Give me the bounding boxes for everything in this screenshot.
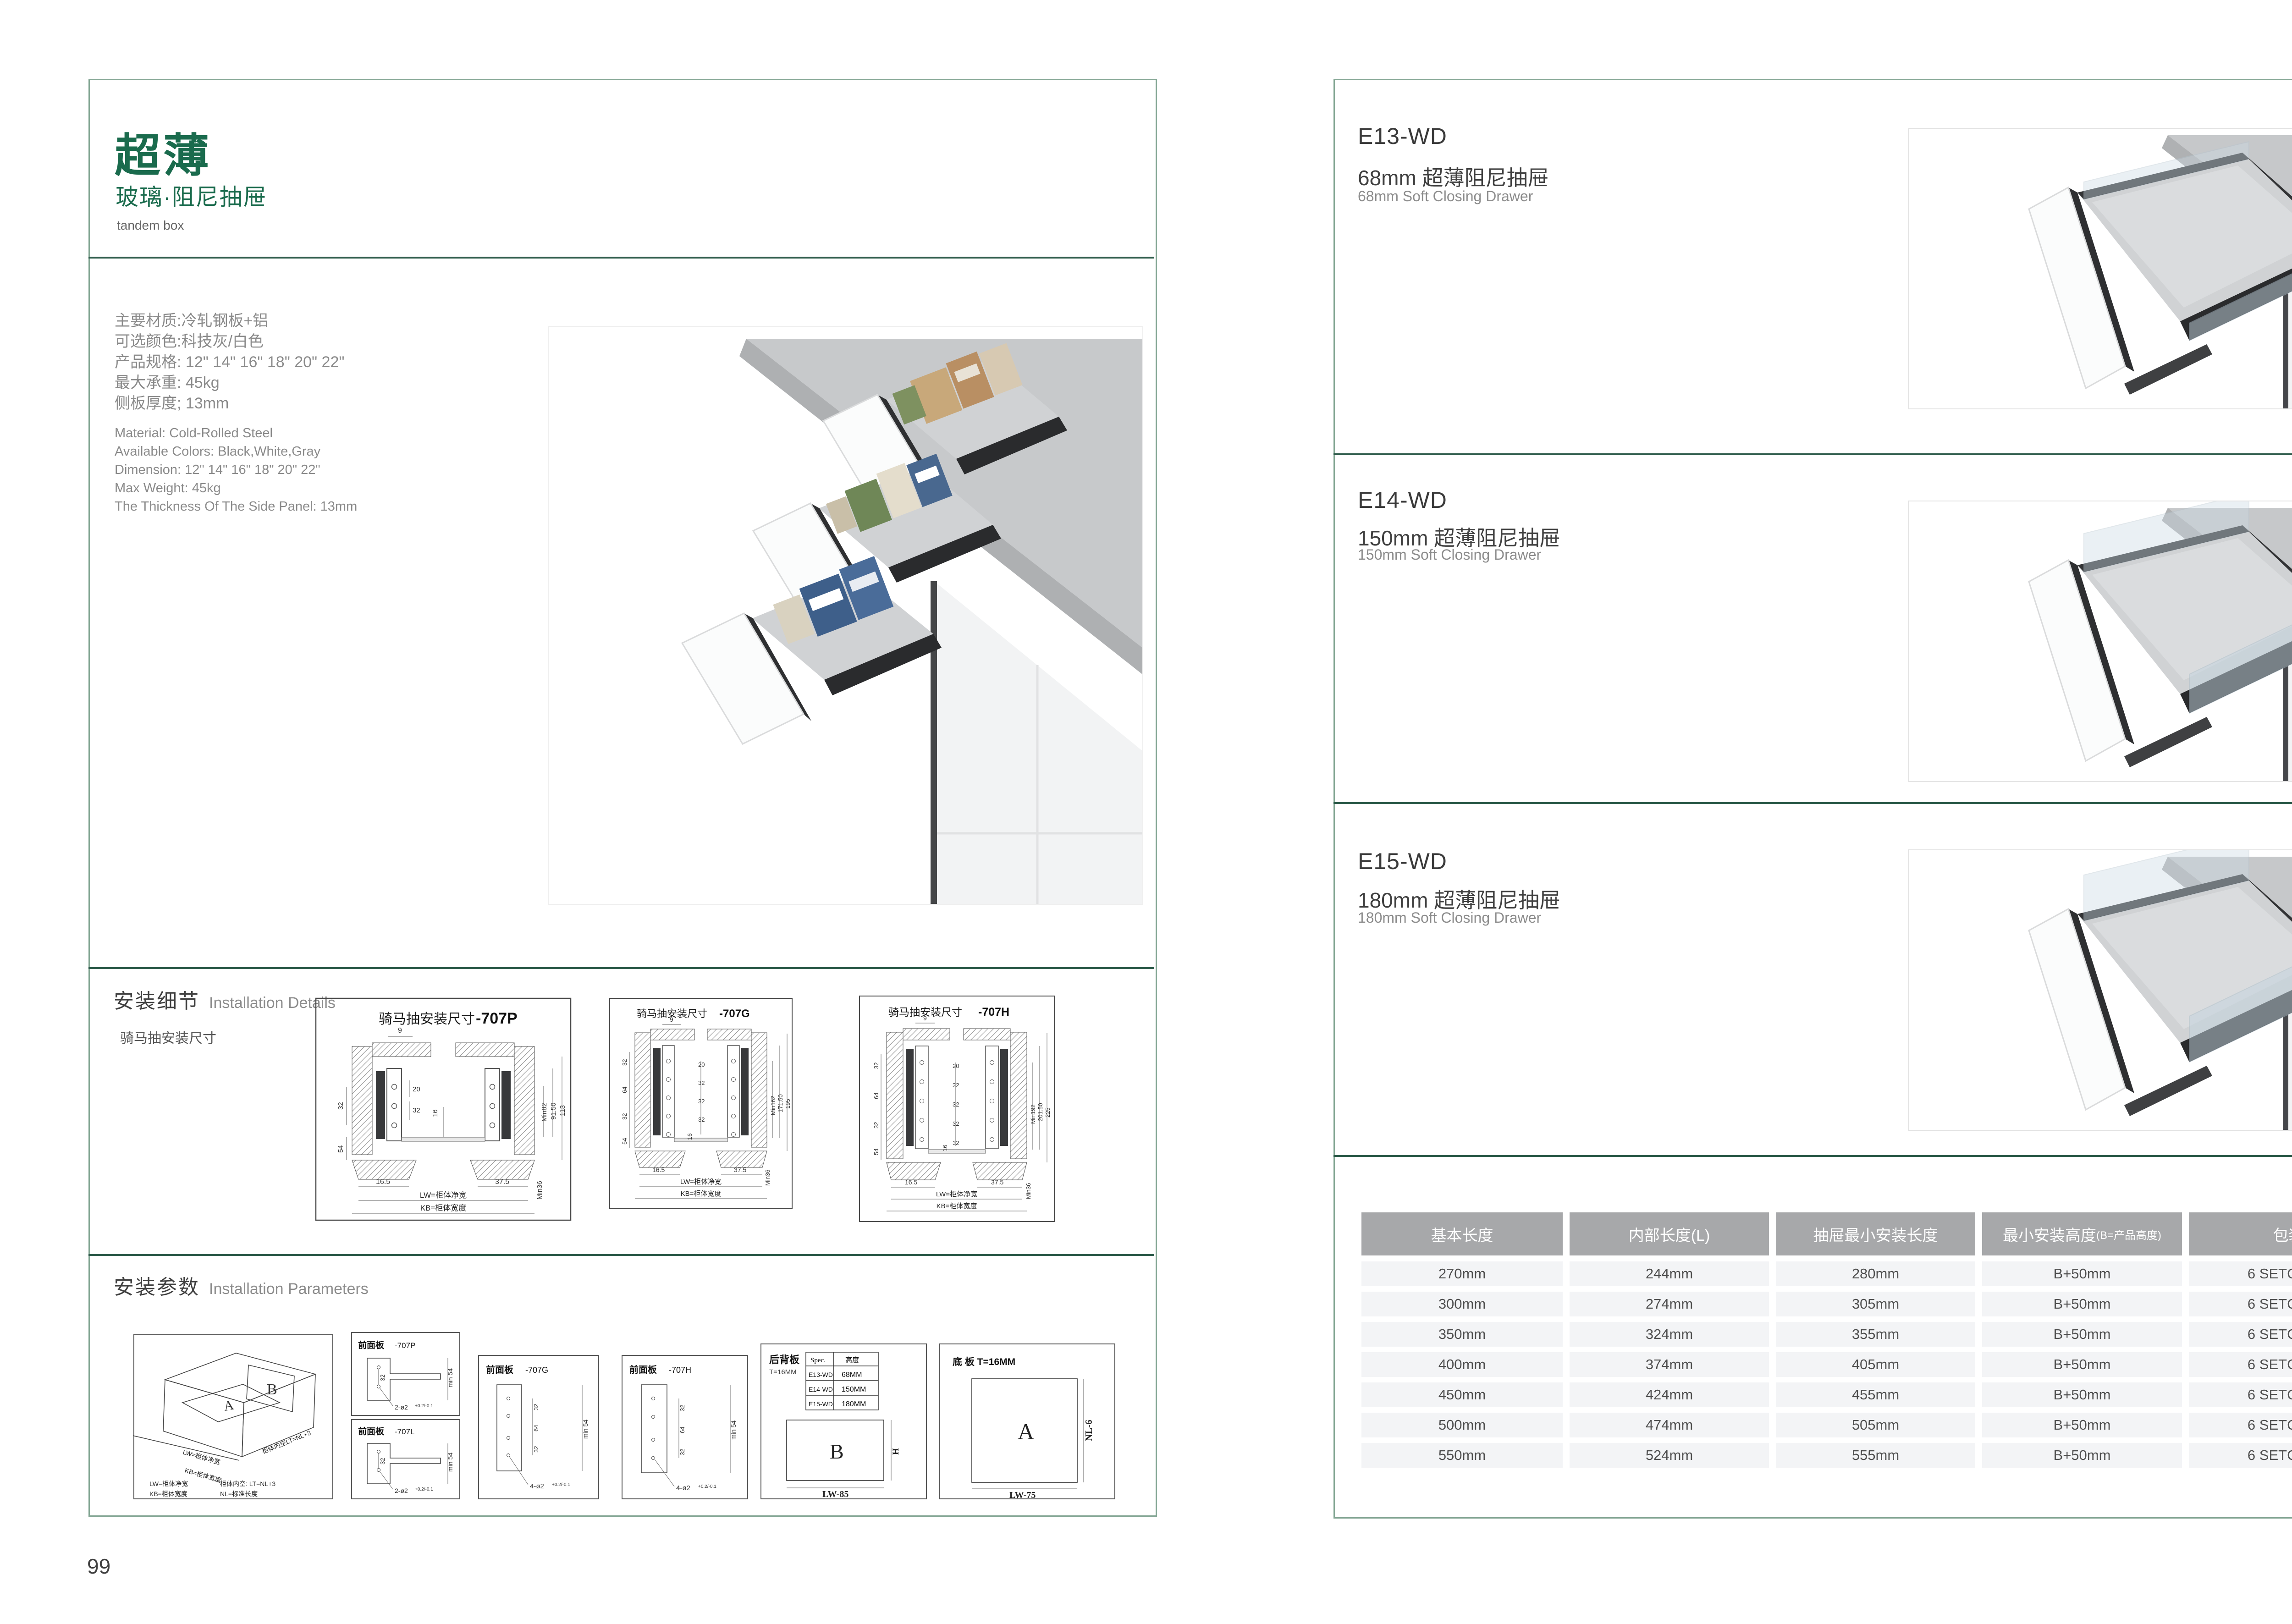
drawing-707G: 骑马抽安装尺寸 -707G 9 20 32 32 32 16 32 64 32 bbox=[608, 997, 793, 1212]
divider-left-1 bbox=[88, 967, 1154, 969]
table-row: 550mm524mm555mmB+50mm6 SETC/TNB bbox=[1361, 1443, 2292, 1468]
dim-h: H bbox=[891, 1448, 901, 1455]
dim: 201.50 bbox=[1037, 1103, 1044, 1121]
product-code-e13: E13-WD bbox=[1358, 123, 1447, 149]
table-header-cell: 内部长度(L) bbox=[1570, 1212, 1769, 1255]
dim: Min162 bbox=[770, 1096, 777, 1115]
table-cell: 424mm bbox=[1570, 1382, 1769, 1407]
table-cell: 505mm bbox=[1776, 1413, 1975, 1437]
table-cell: B+50mm bbox=[1982, 1413, 2182, 1437]
panel-code: -707G bbox=[525, 1365, 548, 1375]
dim-lw: LW=柜体净宽 bbox=[420, 1191, 467, 1200]
dim: 195 bbox=[784, 1099, 791, 1109]
divider-left-header bbox=[88, 257, 1154, 259]
drawer-render-e15 bbox=[1909, 850, 2292, 1130]
iso-lw: LW=柜体净宽 bbox=[182, 1448, 221, 1466]
iso-legend-1: LW=柜体净宽 bbox=[149, 1480, 188, 1487]
table-cell: 350mm bbox=[1361, 1322, 1563, 1347]
dim-lw75: LW-75 bbox=[1009, 1490, 1036, 1500]
table-cell: 300mm bbox=[1361, 1292, 1563, 1316]
drawer-render-e13 bbox=[1909, 129, 2292, 408]
header-label: 抽屉最小安装长度 bbox=[1813, 1223, 1938, 1245]
bottom-panel-title: 底 板 T=16MM bbox=[953, 1356, 1015, 1367]
table-row: 500mm474mm505mmB+50mm6 SETC/TNB bbox=[1361, 1413, 2292, 1437]
dim: 37.5 bbox=[734, 1166, 746, 1173]
product-photo-e14 bbox=[1908, 501, 2292, 782]
dim: 64 bbox=[621, 1087, 628, 1093]
dim-kb: KB=柜体宽度 bbox=[681, 1190, 722, 1198]
drawing-707P: 骑马抽安装尺寸 -707P 9 20 32 16 32 54 Min82 91 bbox=[314, 997, 572, 1224]
spec-cell: 68MM bbox=[842, 1371, 862, 1379]
panel-holes: 2-ø2 bbox=[395, 1404, 408, 1411]
table-cell: 450mm bbox=[1361, 1382, 1563, 1407]
table-cell: 555mm bbox=[1776, 1443, 1975, 1468]
dim: 64 bbox=[873, 1093, 880, 1099]
header-label: 内部长度(L) bbox=[1629, 1223, 1710, 1245]
dim: 37.5 bbox=[991, 1178, 1003, 1186]
spec-cn-line: 可选颜色:科技灰/白色 bbox=[115, 331, 344, 352]
dim: 171.50 bbox=[777, 1094, 784, 1112]
dim: 16 bbox=[686, 1134, 693, 1140]
panel-code: -707H bbox=[669, 1365, 691, 1375]
dim: 9 bbox=[923, 1014, 927, 1022]
product-photo-main bbox=[548, 326, 1143, 905]
divider-right-2 bbox=[1333, 802, 2292, 804]
panel-707L: 前面板 -707L 32 min 54 2-ø2 +0.2/-0.1 bbox=[351, 1419, 461, 1502]
install-details-cn: 安装细节 bbox=[114, 990, 200, 1013]
table-cell: B+50mm bbox=[1982, 1292, 2182, 1316]
install-params-cn: 安装参数 bbox=[114, 1276, 200, 1299]
table-cell: 400mm bbox=[1361, 1352, 1563, 1377]
header-label-sub: (B=产品高度) bbox=[2096, 1226, 2161, 1242]
table-row: 450mm424mm455mmB+50mm6 SETC/TNB bbox=[1361, 1382, 2292, 1407]
dim: Min82 bbox=[540, 1103, 548, 1122]
spec-cell: 150MM bbox=[842, 1386, 866, 1393]
table-cell: 374mm bbox=[1570, 1352, 1769, 1377]
dim: 32 bbox=[953, 1082, 959, 1089]
table-cell: B+50mm bbox=[1982, 1261, 2182, 1286]
dim: 32 bbox=[698, 1098, 705, 1105]
dim: Min36 bbox=[536, 1181, 544, 1200]
dim: 32 bbox=[379, 1458, 386, 1464]
install-details-sub: 骑马抽安装尺寸 bbox=[120, 1027, 216, 1047]
dim: 9 bbox=[398, 1027, 402, 1035]
dim: min 54 bbox=[446, 1368, 454, 1387]
drawing-707H: 骑马抽安装尺寸 -707H 9 20 32 32 32 32 16 32 64 bbox=[858, 995, 1056, 1225]
spec-cn-line: 主要材质:冷轧钢板+铝 bbox=[115, 311, 344, 331]
table-row: 270mm244mm280mmB+50mm6 SETC/TNB bbox=[1361, 1261, 2292, 1286]
back-panel-thickness: T=16MM bbox=[769, 1368, 797, 1376]
table-cell: 270mm bbox=[1361, 1261, 1563, 1286]
spec-cell: E14-WD bbox=[809, 1386, 833, 1393]
dim: 32 bbox=[533, 1446, 540, 1453]
table-cell: 6 SETC/TNB bbox=[2189, 1443, 2292, 1468]
drawing-code: -707H bbox=[978, 1006, 1009, 1018]
product-code-e15: E15-WD bbox=[1358, 848, 1447, 875]
dim: 32 bbox=[873, 1122, 880, 1129]
dim: 16.5 bbox=[376, 1178, 390, 1186]
page-subtitle: 玻璃·阻尼抽屉 bbox=[116, 179, 267, 212]
panel-holes: 2-ø2 bbox=[395, 1487, 408, 1494]
table-cell: 405mm bbox=[1776, 1352, 1975, 1377]
dim: 32 bbox=[953, 1140, 959, 1146]
spec-cell: E15-WD bbox=[809, 1400, 833, 1408]
panel-707G: 前面板 -707G 32 64 32 min 54 4-ø2 +0.2/-0.1 bbox=[478, 1354, 600, 1502]
product-photo-e15 bbox=[1908, 849, 2292, 1131]
dim: 32 bbox=[679, 1405, 686, 1411]
dim: 16.5 bbox=[905, 1178, 917, 1186]
dim: 54 bbox=[621, 1138, 628, 1145]
table-cell: 305mm bbox=[1776, 1292, 1975, 1316]
panel-707P: 前面板 -707P 32 min 54 2-ø2 +0.2/-0.1 bbox=[351, 1332, 461, 1419]
dim: 32 bbox=[953, 1120, 959, 1127]
dim: 91.50 bbox=[550, 1102, 557, 1120]
dim-kb: KB=柜体宽度 bbox=[937, 1202, 977, 1210]
iso-legend-3: KB=柜体宽度 bbox=[149, 1490, 187, 1497]
table-cell: 6 SETC/TNB bbox=[2189, 1322, 2292, 1347]
dim: 32 bbox=[679, 1449, 686, 1455]
table-cell: 524mm bbox=[1570, 1443, 1769, 1468]
table-row: 300mm274mm305mmB+50mm6 SETC/TNB bbox=[1361, 1292, 2292, 1316]
iso-cabinet-drawing: B A LW=柜体净宽 KB=柜体宽度 柜体内空LT=NL+3 LW=柜体净宽 … bbox=[133, 1334, 334, 1502]
page-tag: tandem box bbox=[117, 218, 184, 233]
dim: 32 bbox=[533, 1404, 540, 1410]
product-name-cn-e13: 68mm 超薄阻尼抽屉 bbox=[1358, 161, 1549, 192]
table-header-cell: 包装 bbox=[2189, 1212, 2292, 1255]
dim-lw: LW=柜体净宽 bbox=[936, 1190, 977, 1198]
table-cell: 324mm bbox=[1570, 1322, 1769, 1347]
spec-en-line: Available Colors: Black,White,Gray bbox=[115, 442, 357, 461]
panel-holes: 4-ø2 bbox=[530, 1482, 544, 1490]
table-cell: 280mm bbox=[1776, 1261, 1975, 1286]
drawing-code: -707G bbox=[719, 1007, 750, 1020]
spec-h2: 高度 bbox=[845, 1356, 859, 1364]
product-code-e14: E14-WD bbox=[1358, 487, 1447, 513]
header-label: 基本长度 bbox=[1431, 1223, 1493, 1245]
table-cell: 455mm bbox=[1776, 1382, 1975, 1407]
dim-kb: KB=柜体宽度 bbox=[420, 1204, 467, 1212]
iso-label-b: B bbox=[267, 1381, 277, 1398]
dim: 64 bbox=[533, 1425, 540, 1431]
panel-title: 前面板 bbox=[358, 1426, 385, 1437]
table-header-cell: 最小安装高度(B=产品高度) bbox=[1982, 1212, 2182, 1255]
product-name-en-e15: 180mm Soft Closing Drawer bbox=[1358, 909, 1541, 926]
panel-707H: 前面板 -707H 32 64 32 min 54 4-ø2 +0.2/-0.1 bbox=[621, 1354, 749, 1502]
divider-left-2 bbox=[88, 1254, 1154, 1256]
panel-code: -707L bbox=[395, 1427, 414, 1436]
bottom-panel-drawing: 底 板 T=16MM A NL-6 LW-75 bbox=[939, 1343, 1116, 1502]
spec-h1: Spec. bbox=[810, 1357, 826, 1364]
table-cell: B+50mm bbox=[1982, 1382, 2182, 1407]
spec-en-line: Material: Cold-Rolled Steel bbox=[115, 424, 357, 442]
back-panel-drawing: 后背板 T=16MM Spec. 高度 E13-WD 68MM E14-WD 1… bbox=[760, 1343, 927, 1502]
iso-legend-2: 柜体内空: LT=NL+3 bbox=[220, 1480, 275, 1487]
header-label: 包装 bbox=[2273, 1223, 2292, 1245]
spec-cn-line: 最大承重: 45kg bbox=[115, 373, 344, 393]
panel-tol: +0.2/-0.1 bbox=[415, 1404, 433, 1409]
spec-en-line: Max Weight: 45kg bbox=[115, 479, 357, 497]
dim: min 54 bbox=[730, 1420, 737, 1440]
table-cell: 550mm bbox=[1361, 1443, 1563, 1468]
iso-legend-4: NL=标准长度 bbox=[220, 1490, 258, 1497]
back-panel-title: 后背板 bbox=[769, 1354, 800, 1365]
table-header-cell: 基本长度 bbox=[1361, 1212, 1563, 1255]
product-name-en-e14: 150mm Soft Closing Drawer bbox=[1358, 546, 1541, 563]
dim: 113 bbox=[559, 1105, 567, 1116]
table-header-cell: 抽屉最小安装长度 bbox=[1776, 1212, 1975, 1255]
divider-right-1 bbox=[1333, 453, 2292, 455]
page-number-left: 99 bbox=[87, 1554, 110, 1579]
iso-lt: 柜体内空LT=NL+3 bbox=[261, 1429, 312, 1455]
dim: 32 bbox=[413, 1107, 420, 1114]
dim: 32 bbox=[621, 1113, 628, 1120]
panel-code: -707P bbox=[395, 1341, 415, 1350]
dim: 16 bbox=[431, 1109, 439, 1117]
spec-en-line: The Thickness Of The Side Panel: 13mm bbox=[115, 497, 357, 516]
dim: 37.5 bbox=[495, 1178, 509, 1186]
drawer-render-main bbox=[549, 327, 1142, 904]
table-cell: 274mm bbox=[1570, 1292, 1769, 1316]
dim: 32 bbox=[698, 1079, 705, 1086]
dim: 32 bbox=[873, 1062, 880, 1069]
dim: 32 bbox=[698, 1116, 705, 1123]
dim: 64 bbox=[679, 1427, 686, 1433]
iso-kb: KB=柜体宽度 bbox=[184, 1467, 222, 1484]
table-cell: 6 SETC/TNB bbox=[2189, 1261, 2292, 1286]
table-cell: 355mm bbox=[1776, 1322, 1975, 1347]
dim: 32 bbox=[953, 1101, 959, 1108]
dim: 20 bbox=[953, 1062, 959, 1069]
table-cell: B+50mm bbox=[1982, 1322, 2182, 1347]
dim: min 54 bbox=[446, 1453, 454, 1472]
table-cell: 500mm bbox=[1361, 1413, 1563, 1437]
spec-list-cn: 主要材质:冷轧钢板+铝 可选颜色:科技灰/白色 产品规格: 12" 14" 16… bbox=[115, 311, 344, 414]
header-label: 最小安装高度 bbox=[2003, 1223, 2096, 1245]
panel-holes: 4-ø2 bbox=[676, 1484, 690, 1492]
panel-tol: +0.2/-0.1 bbox=[415, 1487, 433, 1492]
panel-title: 前面板 bbox=[629, 1364, 657, 1375]
dim: 54 bbox=[337, 1145, 345, 1153]
dim: 225 bbox=[1044, 1107, 1051, 1118]
size-table-header: 基本长度 内部长度(L) 抽屉最小安装长度 最小安装高度(B=产品高度) 包装 bbox=[1361, 1212, 2292, 1255]
spec-cell: 180MM bbox=[842, 1400, 866, 1408]
install-params-title: 安装参数Installation Parameters bbox=[114, 1271, 369, 1300]
install-details-title: 安装细节Installation Details bbox=[114, 985, 336, 1014]
dim: 32 bbox=[337, 1102, 345, 1110]
panel-tol: +0.2/-0.1 bbox=[698, 1484, 716, 1489]
table-cell: 474mm bbox=[1570, 1413, 1769, 1437]
dim: 32 bbox=[379, 1375, 386, 1381]
dim: 9 bbox=[670, 1016, 673, 1023]
dim: 32 bbox=[621, 1059, 628, 1066]
drawing-code: -707P bbox=[476, 1010, 518, 1027]
table-cell: 6 SETC/TNB bbox=[2189, 1382, 2292, 1407]
panel-title: 前面板 bbox=[486, 1364, 514, 1375]
bottom-panel-label: A bbox=[1018, 1419, 1034, 1444]
dim-lw85: LW-85 bbox=[822, 1489, 848, 1499]
dim: 54 bbox=[873, 1149, 880, 1155]
dim: Min36 bbox=[764, 1170, 771, 1186]
spec-cn-line: 产品规格: 12" 14" 16" 18" 20" 22" bbox=[115, 352, 344, 373]
table-cell: 6 SETC/TNB bbox=[2189, 1413, 2292, 1437]
panel-title: 前面板 bbox=[358, 1340, 385, 1350]
table-cell: 6 SETC/TNB bbox=[2189, 1352, 2292, 1377]
spec-cn-line: 侧板厚度; 13mm bbox=[115, 393, 344, 414]
back-panel-label: B bbox=[830, 1440, 844, 1463]
dim: min 54 bbox=[582, 1420, 589, 1439]
table-cell: B+50mm bbox=[1982, 1443, 2182, 1468]
spec-cell: E13-WD bbox=[809, 1371, 833, 1378]
dim: 20 bbox=[413, 1085, 420, 1093]
table-cell: 6 SETC/TNB bbox=[2189, 1292, 2292, 1316]
spec-list-en: Material: Cold-Rolled Steel Available Co… bbox=[115, 424, 357, 516]
drawer-render-e14 bbox=[1909, 501, 2292, 781]
panel-tol: +0.2/-0.1 bbox=[552, 1482, 570, 1487]
table-cell: B+50mm bbox=[1982, 1352, 2182, 1377]
dim: 16.5 bbox=[652, 1166, 665, 1173]
product-photo-e13 bbox=[1908, 128, 2292, 409]
dim: Min36 bbox=[1025, 1183, 1032, 1199]
divider-right-3 bbox=[1333, 1155, 2292, 1157]
dim-nl6: NL-6 bbox=[1083, 1420, 1094, 1441]
page-title: 超薄 bbox=[115, 118, 212, 185]
dim: 20 bbox=[698, 1061, 705, 1068]
install-params-en: Installation Parameters bbox=[209, 1280, 369, 1298]
dim-lw: LW=柜体净宽 bbox=[680, 1178, 722, 1186]
table-row: 350mm324mm355mmB+50mm6 SETC/TNB bbox=[1361, 1322, 2292, 1347]
table-row: 400mm374mm405mmB+50mm6 SETC/TNB bbox=[1361, 1352, 2292, 1377]
spec-en-line: Dimension: 12" 14" 16" 18" 20" 22" bbox=[115, 461, 357, 479]
product-name-en-e13: 68mm Soft Closing Drawer bbox=[1358, 188, 1533, 205]
drawing-title: 骑马抽安装尺寸 bbox=[379, 1012, 475, 1027]
size-table-body: 270mm244mm280mmB+50mm6 SETC/TNB300mm274m… bbox=[1361, 1261, 2292, 1468]
dim: Min192 bbox=[1030, 1104, 1036, 1124]
table-cell: 244mm bbox=[1570, 1261, 1769, 1286]
dim: 16 bbox=[942, 1145, 948, 1151]
